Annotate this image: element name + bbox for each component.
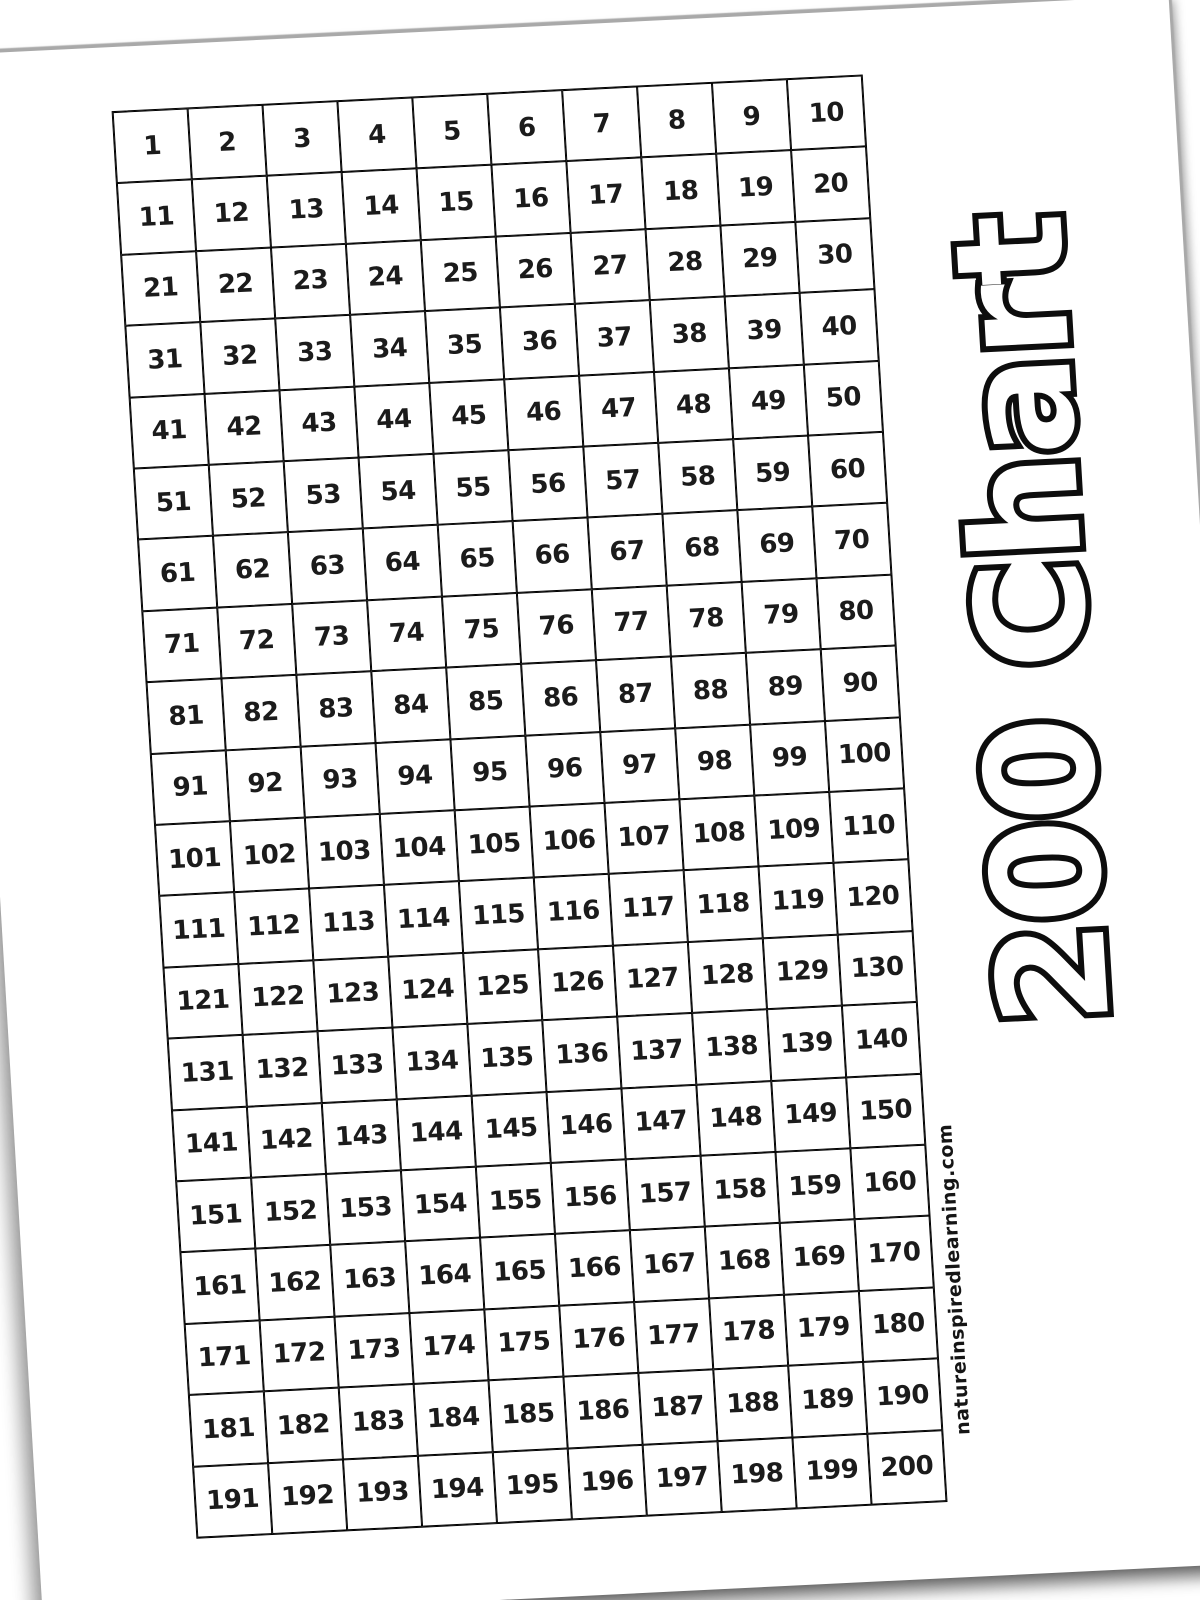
grid-cell: 194 (418, 1452, 497, 1527)
grid-cell: 25 (421, 236, 500, 311)
grid-cell: 178 (709, 1295, 788, 1370)
grid-cell: 139 (767, 1006, 846, 1081)
grid-cell: 180 (859, 1287, 938, 1362)
grid-cell: 78 (667, 582, 746, 657)
grid-cell: 83 (296, 671, 375, 746)
grid-cell: 114 (384, 882, 463, 957)
grid-cell: 175 (484, 1306, 563, 1381)
grid-cell: 65 (438, 521, 517, 596)
grid-cell: 137 (617, 1013, 696, 1088)
grid-cell: 128 (688, 938, 767, 1013)
grid-cell: 134 (392, 1024, 471, 1099)
grid-cell: 85 (446, 664, 525, 739)
grid-cell: 47 (579, 372, 658, 447)
grid-cell: 191 (193, 1463, 272, 1538)
grid-cell: 87 (596, 657, 675, 732)
grid-cell: 133 (318, 1028, 397, 1103)
grid-cell: 51 (134, 465, 213, 540)
grid-cell: 76 (517, 589, 596, 664)
grid-cell: 171 (185, 1320, 264, 1395)
grid-cell: 110 (829, 788, 908, 863)
grid-cell: 53 (284, 458, 363, 533)
grid-cell: 166 (555, 1231, 634, 1306)
grid-cell: 16 (491, 161, 570, 236)
grid-cell: 96 (525, 732, 604, 807)
grid-cell: 19 (716, 150, 795, 225)
grid-cell: 117 (609, 871, 688, 946)
grid-cell: 43 (279, 386, 358, 461)
grid-cell: 57 (583, 443, 662, 518)
grid-cell: 165 (480, 1234, 559, 1309)
grid-cell: 36 (500, 304, 579, 379)
grid-cell: 195 (493, 1448, 572, 1523)
grid-cell: 122 (238, 960, 317, 1035)
grid-cell: 98 (675, 724, 754, 799)
grid-cell: 153 (326, 1170, 405, 1245)
grid-cell: 27 (571, 229, 650, 304)
grid-cell: 127 (613, 942, 692, 1017)
grid-cell: 172 (260, 1317, 339, 1392)
grid-cell: 29 (720, 222, 799, 297)
grid-cell: 104 (380, 810, 459, 885)
grid-cell: 61 (138, 536, 217, 611)
grid-cell: 84 (371, 668, 450, 743)
grid-cell: 103 (305, 814, 384, 889)
grid-cell: 75 (442, 593, 521, 668)
grid-cell: 38 (650, 297, 729, 372)
grid-cell: 147 (621, 1084, 700, 1159)
grid-cell: 74 (367, 596, 446, 671)
grid-cell: 126 (538, 945, 617, 1020)
grid-cell: 156 (551, 1159, 630, 1234)
grid-cell: 48 (654, 368, 733, 443)
grid-cell: 7 (562, 86, 641, 161)
grid-cell: 163 (330, 1242, 409, 1317)
grid-cell: 142 (247, 1103, 326, 1178)
grid-cell: 68 (662, 510, 741, 585)
grid-cell: 42 (205, 390, 284, 465)
grid-cell: 99 (750, 721, 829, 796)
grid-cell: 159 (775, 1148, 854, 1223)
grid-cell: 71 (142, 607, 221, 682)
grid-cell: 121 (163, 964, 242, 1039)
grid-cell: 58 (658, 439, 737, 514)
grid-cell: 149 (771, 1077, 850, 1152)
grid-cell: 182 (264, 1388, 343, 1463)
grid-cell: 92 (226, 746, 305, 821)
paper-sheet: 1234567891011121314151617181920212223242… (0, 0, 1200, 1600)
grid-cell: 77 (592, 585, 671, 660)
grid-cell: 183 (339, 1384, 418, 1459)
grid-cell: 55 (433, 450, 512, 525)
grid-cell: 162 (255, 1245, 334, 1320)
page-background: 1234567891011121314151617181920212223242… (0, 0, 1200, 1600)
grid-cell: 123 (313, 956, 392, 1031)
grid-cell: 120 (833, 860, 912, 935)
grid-cell: 181 (189, 1391, 268, 1466)
grid-cell: 20 (791, 147, 870, 222)
grid-cell: 56 (508, 447, 587, 522)
grid-cell: 45 (429, 379, 508, 454)
grid-cell: 198 (717, 1437, 796, 1512)
grid-cell: 130 (838, 931, 917, 1006)
grid-cell: 52 (209, 461, 288, 536)
grid-cell: 129 (763, 934, 842, 1009)
grid-cell: 154 (401, 1167, 480, 1242)
grid-cell: 63 (288, 529, 367, 604)
grid-cell: 28 (646, 225, 725, 300)
grid-cell: 33 (275, 315, 354, 390)
grid-cell: 9 (712, 79, 791, 154)
grid-cell: 148 (696, 1081, 775, 1156)
grid-cell: 177 (634, 1298, 713, 1373)
grid-cell: 164 (405, 1238, 484, 1313)
grid-cell: 12 (192, 176, 271, 251)
grid-cell: 143 (322, 1099, 401, 1174)
grid-cell: 8 (637, 83, 716, 158)
grid-cell: 135 (467, 1020, 546, 1095)
grid-cell: 173 (334, 1313, 413, 1388)
grid-cell: 62 (213, 532, 292, 607)
grid-cell: 144 (397, 1095, 476, 1170)
grid-cell: 86 (521, 660, 600, 735)
grid-cell: 40 (800, 289, 879, 364)
grid-cell: 81 (147, 679, 226, 754)
grid-cell: 179 (784, 1291, 863, 1366)
grid-cell: 138 (692, 1009, 771, 1084)
grid-cell: 124 (388, 953, 467, 1028)
grid-cell: 150 (846, 1073, 925, 1148)
grid-cell: 125 (463, 949, 542, 1024)
grid-cell: 118 (684, 867, 763, 942)
grid-cell: 199 (792, 1433, 871, 1508)
grid-cell: 90 (821, 646, 900, 721)
grid-cell: 34 (350, 311, 429, 386)
grid-cell: 6 (487, 90, 566, 165)
grid-cell: 18 (641, 154, 720, 229)
grid-cell: 189 (788, 1362, 867, 1437)
grid-cell: 112 (234, 889, 313, 964)
grid-cell: 97 (600, 728, 679, 803)
grid-cell: 15 (417, 165, 496, 240)
grid-cell: 44 (354, 383, 433, 458)
grid-cell: 89 (746, 649, 825, 724)
grid-cell: 91 (151, 750, 230, 825)
grid-cell: 170 (855, 1216, 934, 1291)
grid-cell: 152 (251, 1174, 330, 1249)
grid-cell: 131 (168, 1035, 247, 1110)
grid-cell: 46 (504, 375, 583, 450)
grid-cell: 132 (243, 1031, 322, 1106)
grid-cell: 161 (180, 1249, 259, 1324)
grid-cell: 158 (701, 1152, 780, 1227)
grid-cell: 14 (342, 169, 421, 244)
grid-cell: 113 (309, 885, 388, 960)
grid-cell: 160 (850, 1145, 929, 1220)
grid-cell: 60 (808, 432, 887, 507)
grid-cell: 49 (729, 364, 808, 439)
grid-cell: 102 (230, 818, 309, 893)
page-title: 200 Chart (920, 217, 1147, 1024)
grid-cell: 21 (121, 251, 200, 326)
grid-cell: 193 (343, 1455, 422, 1530)
grid-cell: 174 (409, 1309, 488, 1384)
grid-cell: 13 (267, 172, 346, 247)
grid-cell: 184 (414, 1380, 493, 1455)
grid-cell: 64 (363, 525, 442, 600)
grid-cell: 169 (780, 1220, 859, 1295)
grid-cell: 70 (812, 503, 891, 578)
grid-cell: 73 (292, 600, 371, 675)
grid-cell: 50 (804, 361, 883, 436)
grid-cell: 141 (172, 1106, 251, 1181)
grid-cell: 4 (337, 97, 416, 172)
grid-cell: 140 (842, 1002, 921, 1077)
grid-cell: 37 (575, 300, 654, 375)
grid-cell: 105 (455, 807, 534, 882)
grid-cell: 197 (643, 1441, 722, 1516)
grid-cell: 106 (530, 803, 609, 878)
grid-cell: 22 (196, 247, 275, 322)
grid-cell: 93 (301, 743, 380, 818)
grid-cell: 111 (159, 893, 238, 968)
grid-cell: 196 (568, 1444, 647, 1519)
grid-cell: 107 (604, 799, 683, 874)
grid-cell: 101 (155, 821, 234, 896)
grid-cell: 24 (346, 240, 425, 315)
grid-cell: 109 (754, 792, 833, 867)
grid-cell: 30 (795, 218, 874, 293)
page-title-text: 200 Chart (934, 212, 1132, 1029)
grid-cell: 26 (496, 233, 575, 308)
grid-cell: 157 (626, 1156, 705, 1231)
grid-cell: 176 (559, 1302, 638, 1377)
grid-cell: 119 (759, 863, 838, 938)
grid-cell: 116 (534, 874, 613, 949)
grid-cell: 32 (200, 319, 279, 394)
number-grid: 1234567891011121314151617181920212223242… (112, 74, 948, 1538)
grid-cell: 155 (476, 1163, 555, 1238)
grid-cell: 167 (630, 1227, 709, 1302)
grid-cell: 168 (705, 1223, 784, 1298)
grid-cell: 11 (117, 180, 196, 255)
grid-cell: 2 (188, 105, 267, 180)
grid-cell: 39 (725, 293, 804, 368)
grid-cell: 59 (733, 436, 812, 511)
grid-cell: 185 (489, 1377, 568, 1452)
grid-cell: 35 (425, 308, 504, 383)
grid-cell: 69 (737, 507, 816, 582)
grid-cell: 145 (472, 1092, 551, 1167)
grid-cell: 136 (542, 1017, 621, 1092)
grid-cell: 187 (638, 1369, 717, 1444)
grid-cell: 79 (742, 578, 821, 653)
grid-cell: 94 (376, 739, 455, 814)
grid-cell: 151 (176, 1178, 255, 1253)
grid-cell: 17 (566, 158, 645, 233)
grid-cell: 146 (547, 1088, 626, 1163)
grid-cell: 31 (125, 322, 204, 397)
grid-cell: 67 (588, 514, 667, 589)
grid-cell: 190 (863, 1358, 942, 1433)
grid-cell: 80 (817, 574, 896, 649)
grid-cell: 10 (787, 75, 866, 150)
grid-cell: 192 (268, 1459, 347, 1534)
grid-cell: 95 (450, 735, 529, 810)
grid-cell: 100 (825, 717, 904, 792)
grid-cell: 41 (130, 394, 209, 469)
grid-cell: 200 (867, 1430, 946, 1505)
grid-cell: 66 (513, 518, 592, 593)
grid-cell: 54 (359, 454, 438, 529)
grid-cell: 23 (271, 244, 350, 319)
grid-cell: 115 (459, 878, 538, 953)
grid-cell: 3 (262, 101, 341, 176)
grid-cell: 186 (563, 1373, 642, 1448)
grid-cell: 5 (412, 94, 491, 169)
grid-cell: 188 (713, 1366, 792, 1441)
grid-cell: 1 (113, 108, 192, 183)
grid-cell: 108 (679, 796, 758, 871)
grid-cell: 72 (217, 604, 296, 679)
grid-cell: 88 (671, 653, 750, 728)
grid-cell: 82 (221, 675, 300, 750)
